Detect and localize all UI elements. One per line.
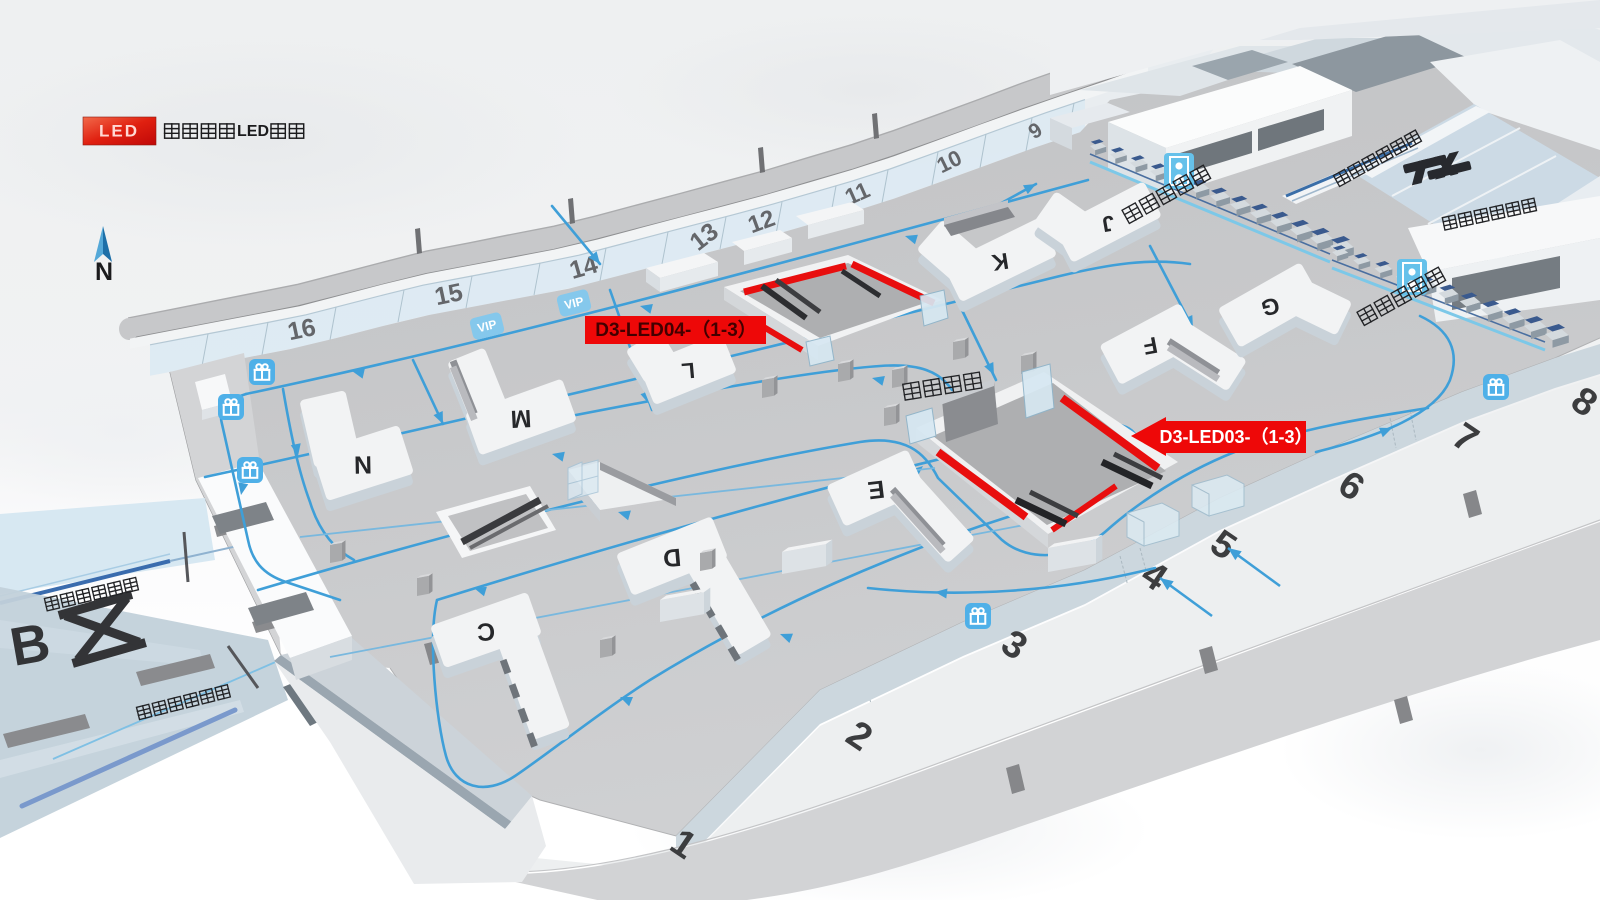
svg-text:E: E	[866, 474, 886, 504]
svg-text:16: 16	[285, 313, 318, 346]
svg-text:LED: LED	[99, 121, 139, 140]
svg-text:15: 15	[432, 278, 465, 311]
svg-text:N: N	[95, 258, 113, 286]
svg-text:D3-LED04-（1-3）: D3-LED04-（1-3）	[595, 318, 757, 341]
svg-text:M: M	[510, 404, 532, 433]
svg-text:LED: LED	[237, 123, 269, 140]
svg-text:N: N	[354, 450, 373, 478]
svg-text:L: L	[680, 358, 696, 384]
svg-text:C: C	[477, 617, 496, 646]
svg-text:D3-LED03-（1-3）: D3-LED03-（1-3）	[1159, 427, 1312, 447]
svg-text:D: D	[662, 543, 682, 572]
